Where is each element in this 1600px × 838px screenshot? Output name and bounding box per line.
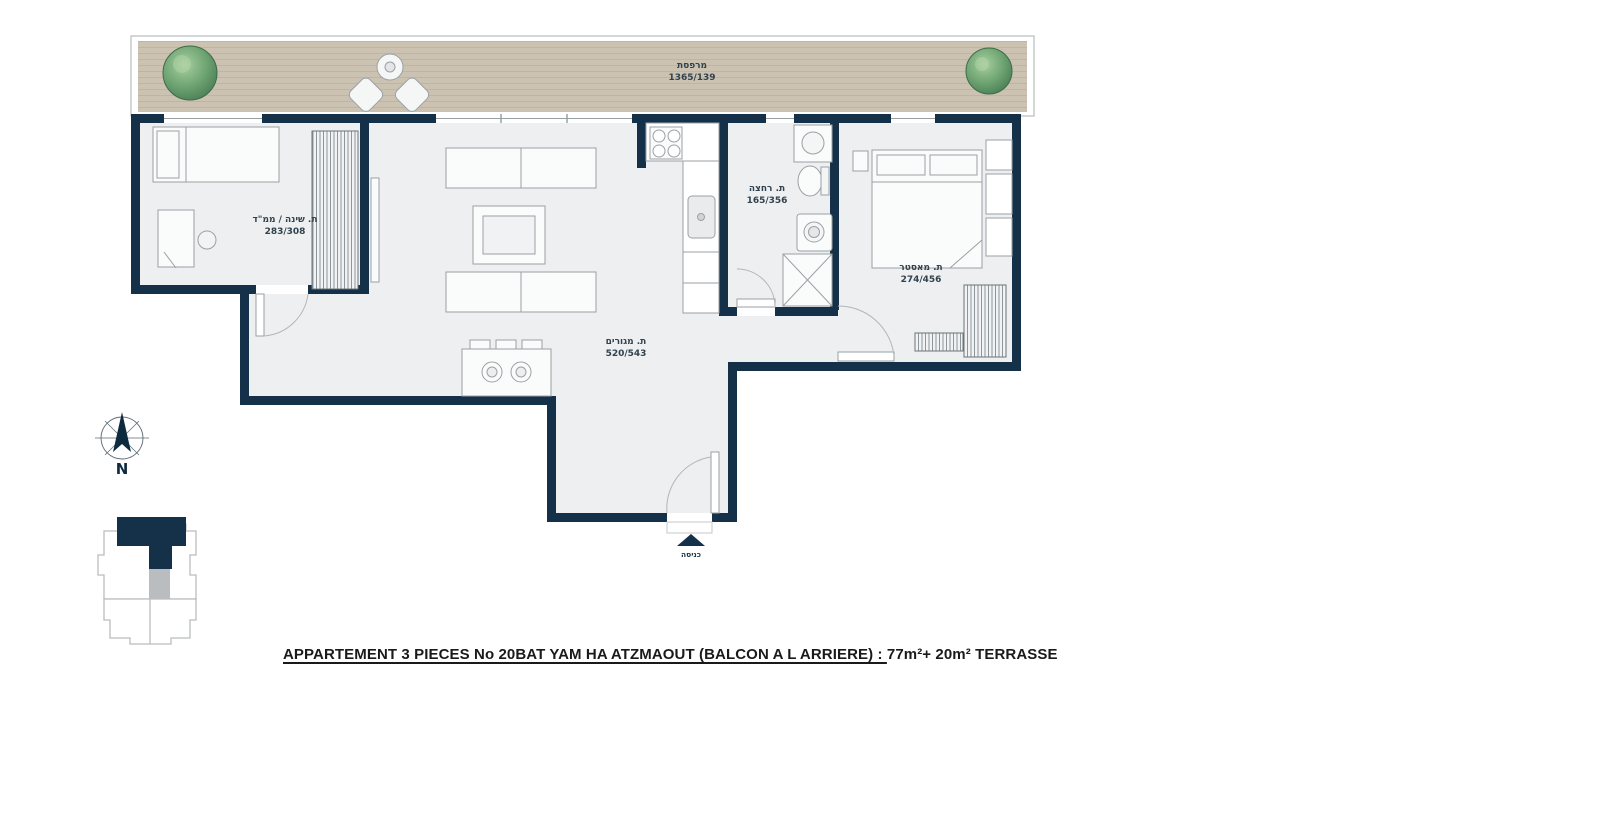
window [766,114,794,123]
toilet [798,166,822,196]
tree-icon [966,48,1012,94]
closet-unit [986,140,1012,170]
wardrobe [964,285,1006,357]
tree-icon [163,46,217,100]
floorplan-page: מרפסת 1365/139 [0,0,1600,838]
terrace-sliding-door [436,114,632,123]
plan-title-underlined: APPARTEMENT 3 PIECES No 20BAT YAM HA ATZ… [283,646,887,663]
closet-unit [986,174,1012,214]
tv-unit [371,178,379,282]
plan-title: APPARTEMENT 3 PIECES No 20BAT YAM HA ATZ… [283,646,1058,663]
dining-chair [470,340,490,349]
dining-table [462,349,551,396]
bathroom-dims: 165/356 [747,196,788,206]
pillow [877,155,925,175]
dresser [915,333,963,351]
entrance-label: כניסה [681,550,701,559]
mamad-door-leaf [256,294,264,336]
closet-unit [986,218,1012,256]
bathroom-label: ת. רחצה [749,184,785,194]
terrace: מרפסת 1365/139 [131,36,1034,116]
wardrobe [312,131,358,289]
dining-chair [522,340,542,349]
terrace-deck [138,41,1027,112]
compass-north-label: N [116,460,129,478]
desk [158,210,194,267]
window [164,114,262,123]
compass-icon [95,412,149,459]
pillow [930,155,977,175]
bedroom-label: ת. שינה / ממ"ד [253,215,318,225]
pillow [157,131,179,178]
compass: N [95,412,149,478]
terrace-dims: 1365/139 [668,73,715,83]
nightstand [853,151,868,171]
master-dims: 274/456 [901,275,942,285]
keyplan [98,517,196,644]
desk-chair [198,231,216,249]
bathroom-door-leaf [737,299,775,307]
window [891,114,935,123]
plan-title-rest: 77m²+ 20m² TERRASSE [887,646,1058,663]
keyplan-core [149,569,170,599]
terrace-label: מרפסת [677,61,707,71]
entry-landing [667,522,712,533]
dining-chair [496,340,516,349]
master-label: ת. מאסטר [899,263,942,273]
floorplan-canvas: מרפסת 1365/139 [0,0,1600,838]
entrance-door-leaf [711,452,719,513]
bedroom-dims: 283/308 [265,227,306,237]
keyplan-icon [98,517,196,644]
entrance-arrow-icon [677,534,705,546]
entrance-arrow: כניסה [677,534,705,559]
master-door-leaf [838,352,894,361]
living-dims: 520/543 [606,349,647,359]
living-label: ת. מגורים [606,337,647,347]
